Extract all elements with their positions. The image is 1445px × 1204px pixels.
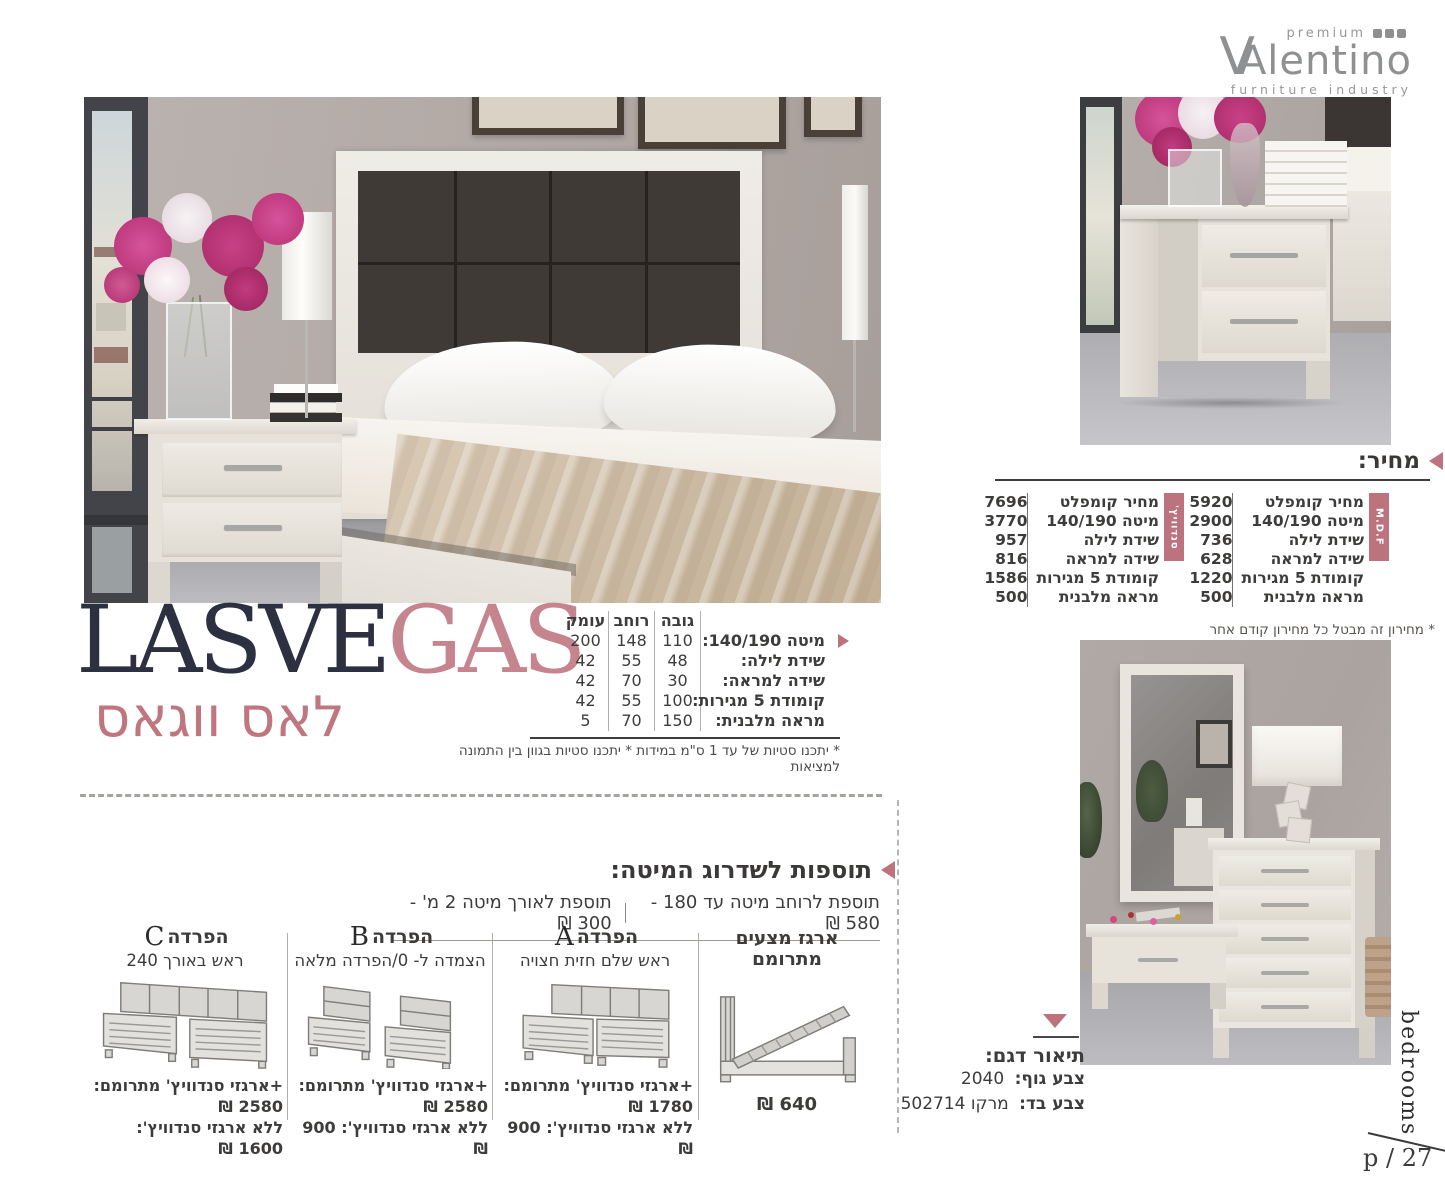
book bbox=[270, 403, 336, 412]
fabric-color-label: צבע בד: bbox=[1019, 1094, 1085, 1114]
flower bbox=[224, 267, 268, 311]
book-stack bbox=[1265, 141, 1347, 207]
cosmetics bbox=[1128, 912, 1134, 918]
price-row-label: מיטה 140/190 bbox=[1232, 512, 1364, 531]
price-row-value: 2900 bbox=[1184, 512, 1232, 531]
divider bbox=[1033, 1036, 1079, 1038]
dimension-row-label: שידה למראה: bbox=[701, 671, 825, 691]
storage-box-title: ארגז מצעים מתרומם bbox=[703, 928, 871, 970]
model-title-block: LASVEGAS לאס ווגאס bbox=[76, 598, 583, 748]
nightstand-top bbox=[1120, 205, 1348, 219]
mirror-reflection-plant bbox=[1136, 760, 1168, 822]
logo-tagline: furniture industry bbox=[1162, 82, 1412, 97]
dresser-mirror-photo bbox=[1080, 640, 1391, 1065]
lamp-base-cube bbox=[1286, 817, 1312, 843]
dimensions-header-height: גובה bbox=[655, 611, 701, 631]
down-arrow-icon bbox=[1043, 1014, 1067, 1028]
drawer-handle bbox=[224, 465, 282, 470]
dimension-row-label: מראה מלבנית: bbox=[701, 711, 825, 731]
cosmetics bbox=[1110, 916, 1117, 923]
price-row-label: שידת לילה bbox=[1027, 531, 1159, 550]
mirror-reflection-lamp bbox=[1186, 798, 1202, 826]
bench-leg bbox=[1210, 983, 1226, 1009]
price-table-mdf: M.D.F מחיר קומפלט 5920 מיטה 140/190 2900… bbox=[1184, 493, 1389, 607]
price-row-value: 1220 bbox=[1184, 569, 1232, 588]
flower bbox=[252, 193, 304, 245]
price-row-label: קומודת 5 מגירות bbox=[1232, 569, 1364, 588]
option-separation-a: הפרדהA ראש שלם חזית חצויה +ארגזי סנדוויץ… bbox=[497, 924, 693, 1159]
price-row-label: שידת לילה bbox=[1232, 531, 1364, 550]
separation-b-subtitle: הצמדה ל- 0/הפרדה מלאה bbox=[292, 951, 488, 971]
dimension-depth: 42 bbox=[563, 651, 609, 671]
price-row-value: 957 bbox=[979, 531, 1027, 550]
body-color-row: צבע גוף: 2040 bbox=[900, 1067, 1085, 1092]
panel-seam bbox=[358, 262, 740, 265]
price-row-label: קומודת 5 מגירות bbox=[1027, 569, 1159, 588]
left-arrow-icon bbox=[1429, 452, 1443, 470]
table-lamp bbox=[842, 185, 868, 340]
dimensions-header-width: רוחב bbox=[609, 611, 655, 631]
body-color-value: 2040 bbox=[961, 1069, 1004, 1089]
separation-c-subtitle: ראש באורך 240 bbox=[87, 951, 283, 971]
price-row-value: 628 bbox=[1184, 550, 1232, 569]
table-lamp bbox=[1252, 726, 1342, 786]
glass-vase bbox=[1168, 149, 1222, 207]
price-row-value: 7696 bbox=[979, 493, 1027, 512]
dimension-height: 30 bbox=[655, 671, 701, 691]
model-title-part1: LASVE bbox=[76, 586, 387, 695]
left-arrow-icon bbox=[838, 634, 849, 648]
dimension-height: 48 bbox=[655, 651, 701, 671]
model-title-hebrew: לאס ווגאס bbox=[94, 688, 345, 748]
plant bbox=[1080, 782, 1102, 858]
drawer-handle bbox=[1230, 253, 1298, 258]
drawer-handle bbox=[1230, 319, 1298, 324]
separation-b-diagram bbox=[297, 977, 483, 1069]
drawer-handle bbox=[1261, 937, 1309, 941]
upgrades-header: תוספות לשדרוג המיטה: bbox=[545, 856, 895, 884]
cosmetics bbox=[1175, 914, 1181, 920]
separation-name: הפרדה bbox=[577, 926, 638, 948]
lamp-stem bbox=[853, 340, 856, 432]
main-bedroom-photo bbox=[84, 97, 881, 603]
storage-box-price: 640 ₪ bbox=[703, 1094, 871, 1115]
dimension-width: 148 bbox=[609, 631, 655, 651]
drawer-handle bbox=[1261, 903, 1309, 907]
dimension-depth: 5 bbox=[563, 711, 609, 731]
flower bbox=[104, 267, 140, 303]
price-row-value: 1586 bbox=[979, 569, 1027, 588]
dimension-width: 70 bbox=[609, 671, 655, 691]
price-row-value: 736 bbox=[1184, 531, 1232, 550]
dimension-row-label: מיטה 140/190: bbox=[701, 631, 825, 651]
city-view bbox=[94, 347, 128, 363]
separation-a-prices: +ארגזי סנדוויץ' מתרומם: 1780 ₪ ללא ארגזי… bbox=[497, 1075, 693, 1159]
dimension-depth: 42 bbox=[563, 691, 609, 711]
price-grid-mdf: מחיר קומפלט 5920 מיטה 140/190 2900 שידת … bbox=[1184, 493, 1364, 607]
model-title-latin: LASVEGAS bbox=[76, 598, 583, 684]
separation-a-title: הפרדהA bbox=[497, 924, 693, 951]
page-number: p / 27 bbox=[1363, 1144, 1432, 1172]
separation-letter: C bbox=[144, 922, 164, 952]
left-arrow-icon bbox=[881, 861, 895, 879]
divider bbox=[530, 737, 840, 739]
nightstand-leg bbox=[1306, 361, 1330, 399]
column-divider bbox=[287, 933, 288, 1120]
picture-frame bbox=[638, 97, 786, 149]
balcony-rail bbox=[92, 427, 132, 431]
logo-brand-name: VAlentino bbox=[1162, 37, 1412, 81]
dimension-height: 110 bbox=[655, 631, 701, 651]
dimensions-corner-cell bbox=[701, 611, 825, 631]
logo-letters-rest: Alentino bbox=[1239, 38, 1412, 84]
price-with-box: +ארגזי סנדוויץ' מתרומם: 2580 ₪ bbox=[87, 1075, 283, 1117]
price-row-value: 500 bbox=[979, 588, 1027, 607]
dimensions-footnote: * יתכנו סטיות של עד 1 ס"מ במידות * יתכנו… bbox=[420, 743, 840, 775]
balcony-rail bbox=[92, 397, 132, 401]
flower bbox=[144, 257, 190, 303]
price-row-value: 816 bbox=[979, 550, 1027, 569]
dimension-width: 55 bbox=[609, 691, 655, 711]
nightstand-drawer bbox=[162, 443, 342, 497]
body-color-label: צבע גוף: bbox=[1015, 1069, 1085, 1089]
model-description: תיאור דגם: צבע גוף: 2040 צבע בד: מרקו 50… bbox=[900, 1014, 1085, 1117]
section-spine-label: bedrooms bbox=[1396, 1010, 1421, 1136]
price-grid-sandwich: מחיר קומפלט 7696 מיטה 140/190 3770 שידת … bbox=[979, 493, 1159, 607]
dimension-depth: 42 bbox=[563, 671, 609, 691]
price-tab-mdf: M.D.F bbox=[1369, 493, 1389, 561]
price-section: מחיר: M.D.F מחיר קומפלט 5920 מיטה 140/19… bbox=[995, 446, 1445, 656]
dimension-row-label: שידת לילה: bbox=[701, 651, 825, 671]
mirror-reflection-frame bbox=[1196, 720, 1232, 768]
nightstand-drawer bbox=[162, 503, 342, 557]
price-row-label: מראה מלבנית bbox=[1232, 588, 1364, 607]
separation-b-title: הפרדהB bbox=[292, 924, 488, 951]
upgrades-title: תוספות לשדרוג המיטה: bbox=[610, 856, 872, 884]
separation-a-diagram bbox=[502, 977, 688, 1069]
bench-top bbox=[1086, 924, 1238, 937]
nightstand bbox=[142, 419, 352, 603]
price-row-label: שידה למראה bbox=[1232, 550, 1364, 569]
price-row-value: 3770 bbox=[979, 512, 1027, 531]
option-separation-b: הפרדהB הצמדה ל- 0/הפרדה מלאה +ארגזי סנדו… bbox=[292, 924, 488, 1159]
option-separation-c: הפרדהC ראש באורך 240 +ארגזי סנדוויץ' מתר… bbox=[87, 924, 283, 1159]
price-row-label: שידה למראה bbox=[1027, 550, 1159, 569]
catalog-page: premium VAlentino furniture industry bbox=[0, 0, 1445, 1204]
price-with-box: +ארגזי סנדוויץ' מתרומם: 2580 ₪ bbox=[292, 1075, 488, 1117]
price-with-box: +ארגזי סנדוויץ' מתרומם: 1780 ₪ bbox=[497, 1075, 693, 1117]
glass-vase bbox=[166, 302, 232, 420]
nightstand-side bbox=[1158, 219, 1198, 361]
price-header: מחיר: bbox=[1358, 448, 1443, 474]
separation-name: הפרדה bbox=[372, 926, 433, 948]
price-row-value: 5920 bbox=[1184, 493, 1232, 512]
chest-leg bbox=[1213, 1028, 1229, 1058]
model-description-title: תיאור דגם: bbox=[900, 1044, 1085, 1067]
price-row-label: מחיר קומפלט bbox=[1027, 493, 1159, 512]
separation-c-diagram bbox=[92, 977, 278, 1069]
dashed-divider-vertical bbox=[897, 800, 899, 1133]
dimension-label-text: מיטה 140/190: bbox=[702, 631, 825, 650]
subtitle-divider bbox=[625, 903, 626, 923]
price-table-sandwich: סנדוויץ' מחיר קומפלט 7696 מיטה 140/190 3… bbox=[979, 493, 1184, 607]
nightstand-closeup-photo bbox=[1080, 97, 1391, 445]
lamp-stem bbox=[305, 320, 308, 418]
column-divider bbox=[492, 933, 493, 1120]
model-title-part2: GAS bbox=[387, 586, 582, 695]
price-footnote: * מחירון זה מבטל כל מחירון קודם אחר bbox=[1209, 622, 1435, 638]
price-without-box: ללא ארגזי סנדוויץ': 1600 ₪ bbox=[87, 1117, 283, 1159]
separation-c-title: הפרדהC bbox=[87, 924, 283, 951]
separation-b-prices: +ארגזי סנדוויץ' מתרומם: 2580 ₪ ללא ארגזי… bbox=[292, 1075, 488, 1159]
picture-frame bbox=[804, 97, 862, 137]
nightstand-leg bbox=[1120, 219, 1158, 397]
price-row-value: 500 bbox=[1184, 588, 1232, 607]
separation-name: הפרדה bbox=[167, 926, 228, 948]
cosmetics bbox=[1150, 918, 1157, 925]
magazine bbox=[1136, 907, 1181, 921]
column-divider bbox=[698, 933, 699, 1120]
drawer-handle bbox=[1261, 1005, 1309, 1009]
fabric-color-row: צבע בד: מרקו 502714 bbox=[900, 1092, 1085, 1117]
dimensions-table: גובה רוחב עומק מיטה 140/190: 110 148 200… bbox=[563, 611, 825, 731]
separation-letter: B bbox=[350, 922, 369, 952]
price-without-box: ללא ארגזי סנדוויץ': 900 ₪ bbox=[292, 1117, 488, 1159]
dashed-divider-horizontal bbox=[80, 794, 882, 797]
divider bbox=[995, 479, 1430, 481]
brand-logo: premium VAlentino furniture industry bbox=[1162, 26, 1412, 97]
basket bbox=[1365, 937, 1391, 1017]
chest-leg bbox=[1359, 1028, 1375, 1058]
drawer-handle bbox=[1261, 869, 1309, 873]
dimension-width: 70 bbox=[609, 711, 655, 731]
drawer-handle bbox=[1138, 958, 1178, 962]
option-storage-box: ארגז מצעים מתרומם 640 ₪ bbox=[703, 928, 871, 1115]
window-glass bbox=[1086, 107, 1114, 325]
price-tab-sandwich: סנדוויץ' bbox=[1164, 493, 1184, 561]
separation-letter: A bbox=[555, 922, 574, 952]
headboard-upholstery bbox=[358, 171, 740, 353]
bench-leg bbox=[1092, 983, 1108, 1009]
dimensions-header-depth: עומק bbox=[563, 611, 609, 631]
drawer-handle bbox=[1261, 971, 1309, 975]
price-row-label: מחיר קומפלט bbox=[1232, 493, 1364, 512]
window-bar bbox=[84, 515, 148, 525]
dimension-height: 150 bbox=[655, 711, 701, 731]
city-view bbox=[96, 303, 126, 331]
price-row-label: מראה מלבנית bbox=[1027, 588, 1159, 607]
separation-a-subtitle: ראש שלם חזית חצויה bbox=[497, 951, 693, 971]
window-glass bbox=[92, 527, 132, 593]
drawer-handle bbox=[224, 525, 282, 530]
storage-bed-diagram bbox=[709, 976, 865, 1088]
separation-c-prices: +ארגזי סנדוויץ' מתרומם: 2580 ₪ ללא ארגזי… bbox=[87, 1075, 283, 1159]
picture-frame bbox=[472, 97, 624, 135]
price-without-box: ללא ארגזי סנדוויץ': 900 ₪ bbox=[497, 1117, 693, 1159]
dimension-depth: 200 bbox=[563, 631, 609, 651]
dimension-row-label: קומודת 5 מגירות: bbox=[701, 691, 825, 711]
dimension-width: 55 bbox=[609, 651, 655, 671]
fabric-color-value: מרקו 502714 bbox=[901, 1094, 1009, 1114]
decor-vase bbox=[1230, 123, 1260, 207]
price-row-label: מיטה 140/190 bbox=[1027, 512, 1159, 531]
price-title: מחיר: bbox=[1358, 448, 1420, 474]
